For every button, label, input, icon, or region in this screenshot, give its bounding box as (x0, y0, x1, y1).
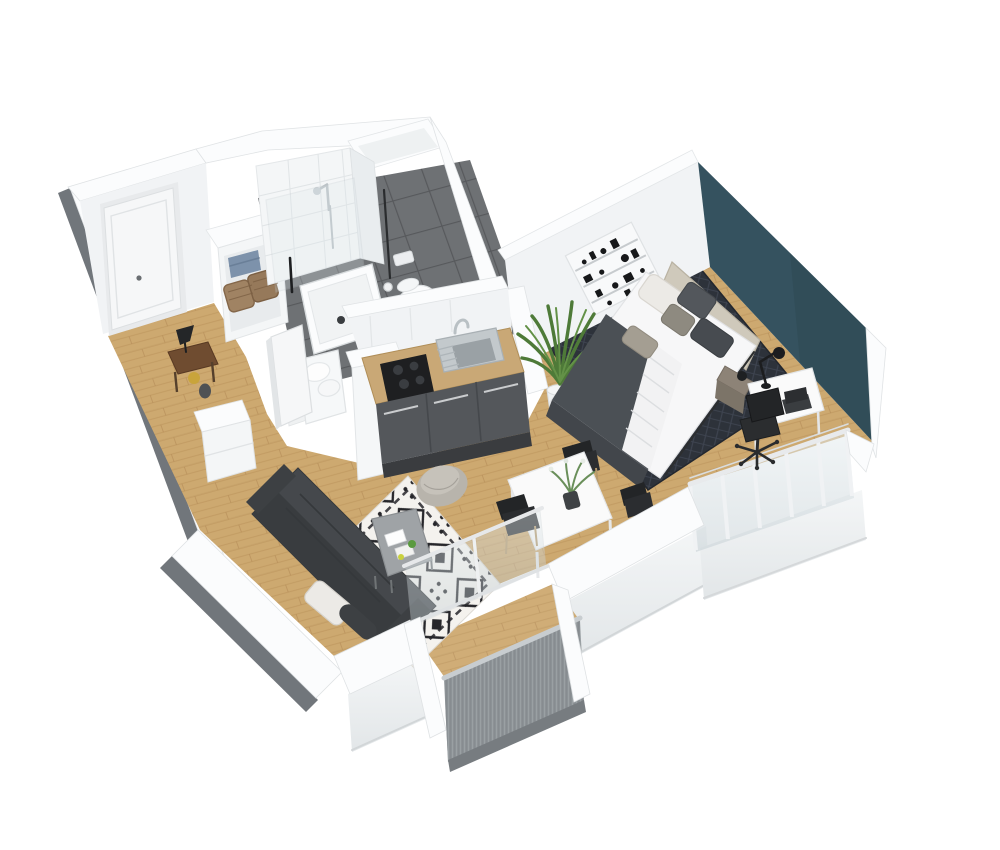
floorplan-stage (0, 0, 1000, 850)
burner-4 (416, 376, 425, 385)
caster-1 (735, 444, 739, 448)
desk-lamp-base (761, 383, 771, 389)
kitchen (342, 276, 532, 480)
console-vase (199, 384, 211, 399)
console-yellow-box (188, 372, 200, 384)
flower-3 (581, 459, 586, 464)
flower-1 (549, 467, 554, 472)
caster-2 (775, 440, 779, 444)
burner-3 (399, 379, 409, 389)
caster-4 (771, 460, 775, 464)
burner-1 (393, 365, 403, 375)
burner-2 (410, 362, 419, 371)
door-handle (136, 275, 141, 280)
floorplan-svg (0, 0, 1000, 850)
flower-2 (564, 459, 569, 464)
shower-drain (337, 316, 345, 324)
caster-5 (755, 466, 759, 470)
toilet-paper-holder (384, 283, 392, 291)
decor-green (408, 540, 416, 548)
caster-3 (739, 462, 743, 466)
decor-yellow (398, 554, 404, 560)
nightstand-speaker (737, 371, 747, 381)
desk-lamp-head (773, 347, 785, 359)
